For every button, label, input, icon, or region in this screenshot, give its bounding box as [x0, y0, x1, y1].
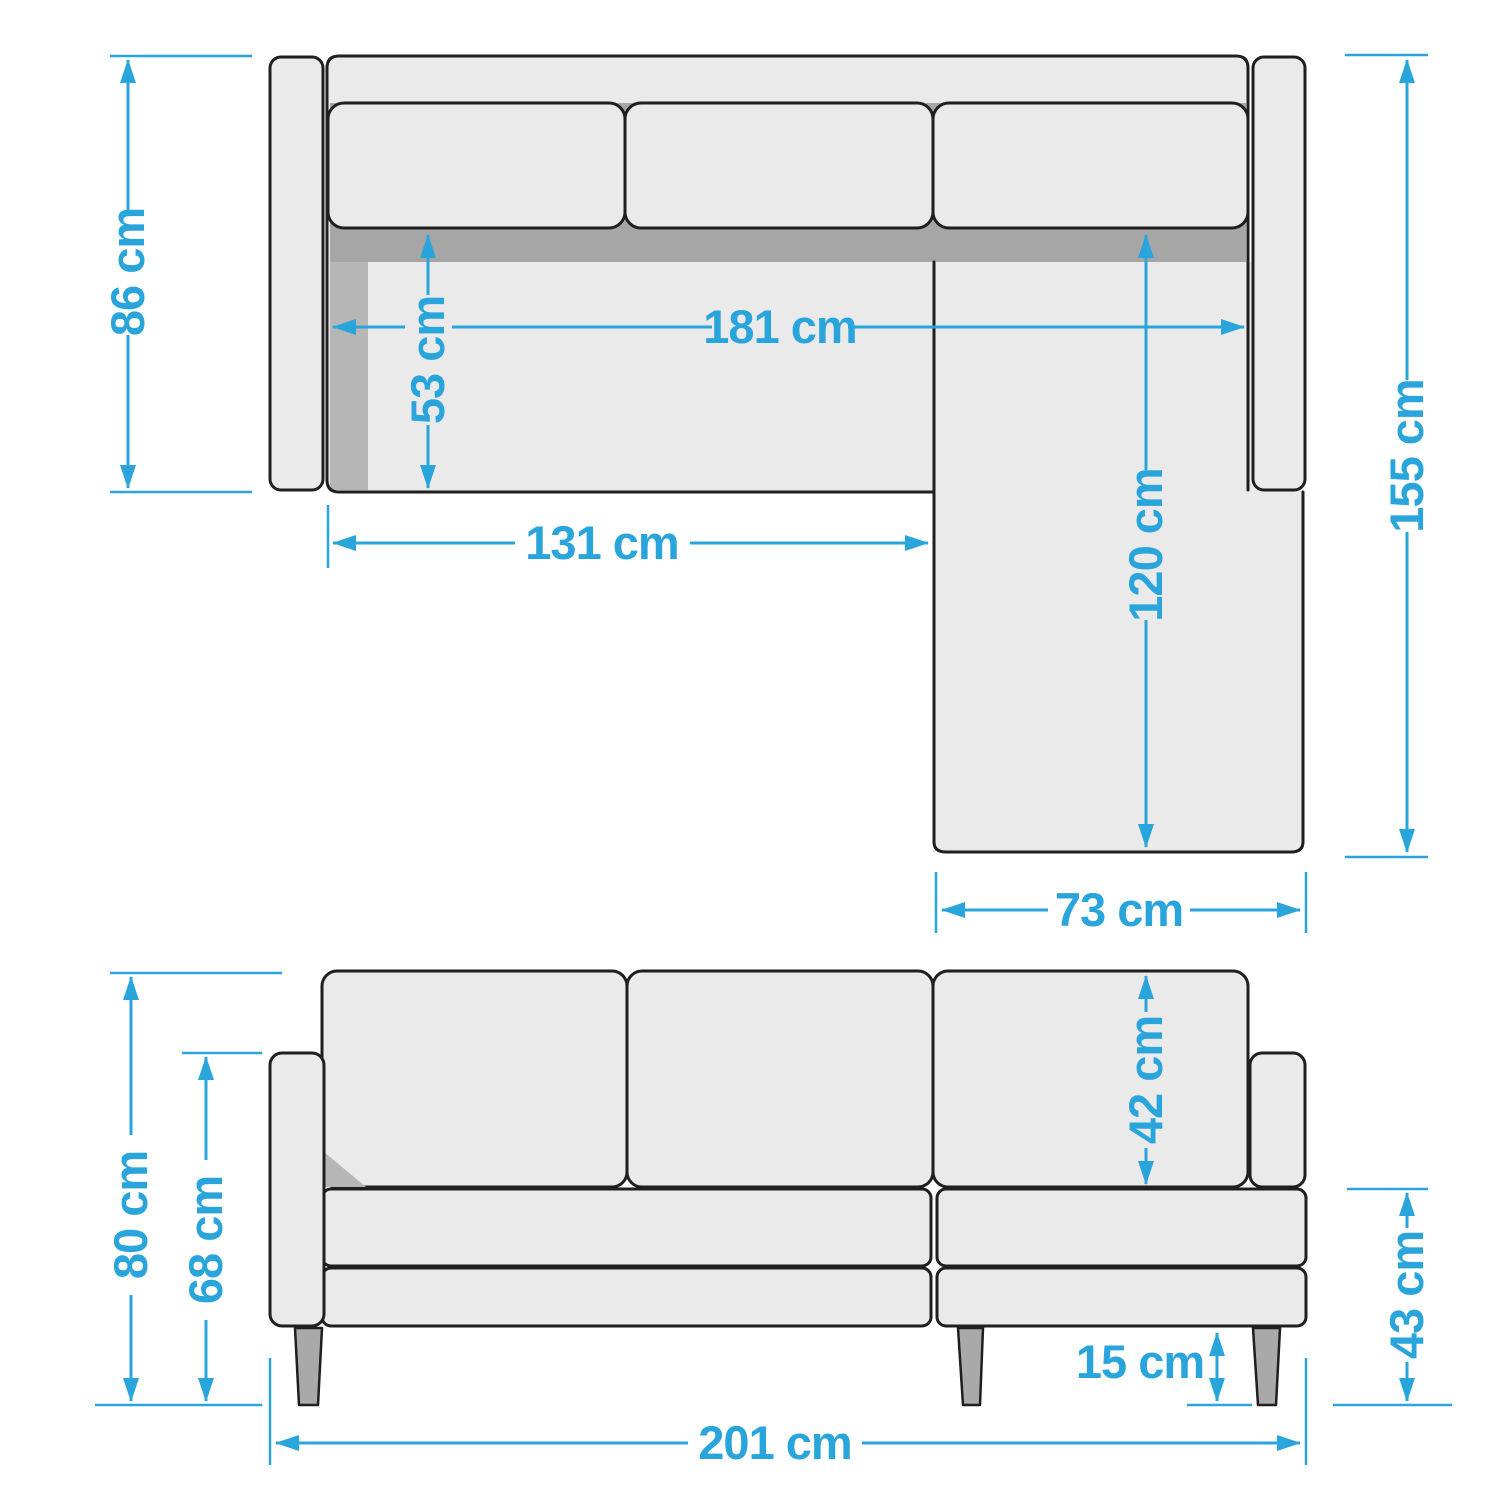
top-back-cushion-1	[328, 103, 625, 228]
dimension-left-section-width: 131 cm	[328, 505, 928, 569]
dimension-label-total-height: 80 cm	[104, 1151, 157, 1279]
top-view-left-seat-shadow	[330, 262, 368, 490]
dimension-label-inner-width: 181 cm	[703, 300, 856, 353]
dimension-label-seat-height: 43 cm	[1380, 1231, 1433, 1359]
front-leg-middle	[958, 1328, 983, 1405]
diagram-canvas: 86 cm 181 cm 53 cm 131 cm 120 cm	[0, 0, 1500, 1500]
front-leg-left	[295, 1328, 322, 1405]
dimension-label-left-section-width: 131 cm	[525, 516, 678, 569]
dimension-label-total-depth: 155 cm	[1380, 379, 1433, 532]
sofa-top-view	[270, 56, 1305, 852]
dimension-chaise-width: 73 cm	[936, 872, 1306, 936]
dimension-label-chaise-length: 120 cm	[1119, 468, 1172, 621]
top-right-armrest	[1253, 57, 1305, 490]
dimension-label-chaise-width: 73 cm	[1055, 883, 1183, 936]
front-leg-right	[1253, 1328, 1280, 1405]
front-seat-cushion-right	[937, 1189, 1306, 1266]
sofa-dimension-diagram: 86 cm 181 cm 53 cm 131 cm 120 cm	[0, 0, 1500, 1500]
top-back-cushion-2	[625, 103, 933, 228]
dimension-label-total-width: 201 cm	[698, 1416, 851, 1469]
front-back-cushion-3	[933, 971, 1248, 1187]
front-seat-cushion-left	[322, 1189, 931, 1266]
front-base-left	[322, 1268, 931, 1326]
front-back-cushion-1	[322, 971, 627, 1187]
dimension-armrest-height: 68 cm	[179, 1053, 262, 1401]
dimension-depth-main: 86 cm	[101, 56, 252, 492]
front-base-right	[937, 1268, 1306, 1326]
top-left-armrest	[270, 57, 323, 490]
dimension-label-depth-main: 86 cm	[101, 208, 154, 336]
dimension-label-leg-height: 15 cm	[1076, 1335, 1204, 1388]
front-right-armrest	[1250, 1053, 1305, 1187]
dimension-label-armrest-height: 68 cm	[179, 1176, 232, 1304]
dimension-leg-height: 15 cm	[1076, 1333, 1252, 1405]
top-back-cushion-3	[933, 103, 1248, 228]
dimension-total-depth: 155 cm	[1345, 55, 1433, 857]
dimension-seat-height: 43 cm	[1333, 1189, 1452, 1405]
front-back-cushion-2	[627, 971, 933, 1187]
front-left-armrest	[270, 1053, 324, 1326]
dimension-label-seat-depth: 53 cm	[401, 296, 454, 424]
dimension-label-backrest-height: 42 cm	[1119, 1016, 1172, 1144]
